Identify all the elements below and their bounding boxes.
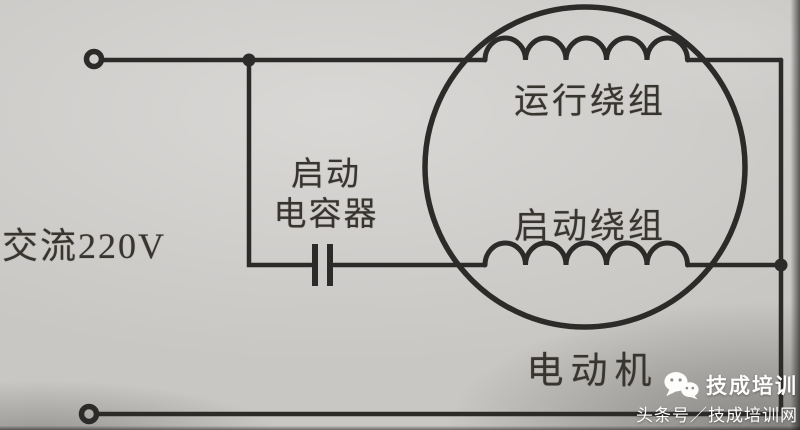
capacitor-label-line2: 电容器: [247, 195, 405, 235]
capacitor-label: 启动 电容器: [247, 155, 405, 235]
motor-circle: [425, 7, 745, 327]
starting-winding-label: 启动绕组: [505, 198, 675, 249]
watermark-brand-line: 技成培训: [663, 370, 798, 400]
photo-background: 交流220V 启动 电容器 运行绕组 启动绕组 电动机 技成培训 头条号／技成培…: [0, 0, 800, 430]
capacitor-plate-left: [312, 244, 318, 286]
watermark-brand-text: 技成培训: [706, 370, 798, 400]
bottom-left-terminal: [82, 407, 97, 422]
top-left-terminal: [87, 52, 102, 67]
ac-source-label: 交流220V: [2, 217, 166, 269]
running-winding-coil: [485, 38, 688, 60]
wechat-icon: [663, 371, 700, 400]
capacitor-label-line1: 启动: [247, 155, 405, 195]
watermark-byline: 头条号／技成培训网: [636, 401, 798, 426]
watermark: 技成培训 头条号／技成培训网: [636, 370, 798, 426]
running-winding-label: 运行绕组: [505, 73, 675, 124]
